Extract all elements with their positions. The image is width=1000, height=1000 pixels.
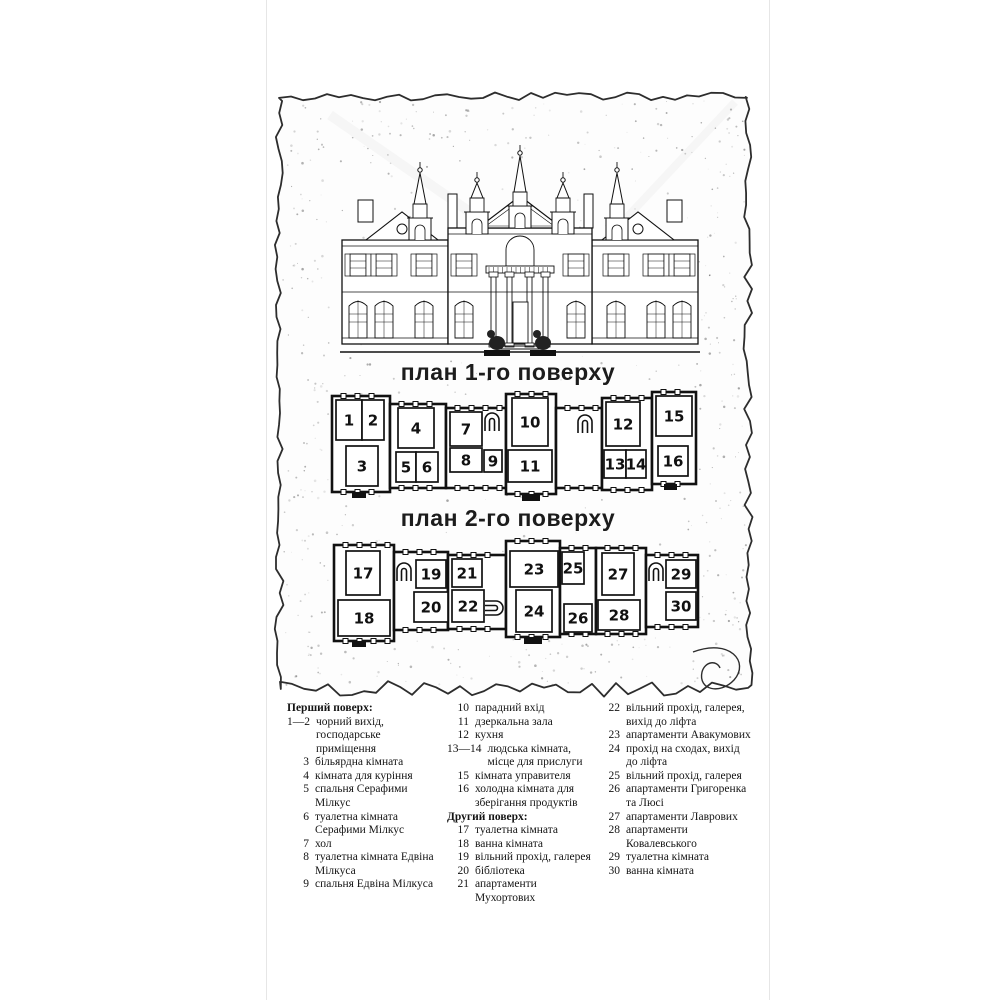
legend-entry-10: 10парадний вхід (447, 702, 595, 716)
room-3: 3 (346, 446, 378, 486)
legend-entry-30: 30ванна кімната (598, 865, 753, 879)
legend-entry-number: 24 (598, 743, 626, 770)
room-number: 17 (353, 565, 374, 583)
legend-entry-text: дзеркальна зала (475, 716, 595, 730)
room-12: 12 (606, 402, 640, 446)
legend-entry-text: апартаменти Мухортових (475, 878, 595, 905)
legend-entry-text: вільний прохід, галерея, вихід до ліфта (626, 702, 753, 729)
room-13: 13 (604, 450, 626, 478)
legend-entry-number: 5 (287, 783, 315, 810)
room-number: 26 (568, 610, 589, 628)
legend-entry-11: 11дзеркальна зала (447, 716, 595, 730)
legend-entry-9: 9спальня Едвіна Мілкуса (287, 878, 437, 892)
room-5: 5 (396, 452, 416, 482)
legend-entry-number: 28 (598, 824, 626, 851)
legend-entry-text: ванна кімната (475, 838, 595, 852)
legend-entry-number: 13—14 (447, 743, 488, 770)
legend-entry-number: 16 (447, 783, 475, 810)
legend-entry-text: кухня (475, 729, 595, 743)
legend-entry-text: туалетна кімната Серафими Мілкус (315, 811, 437, 838)
room-1: 1 (336, 400, 362, 440)
legend-entry-text: туалетна кімната Едвіна Мілкуса (315, 851, 437, 878)
legend-entry-number: 29 (598, 851, 626, 865)
legend-entry-number: 19 (447, 851, 475, 865)
legend-entry-text: холодна кімната для зберігання продуктів (475, 783, 595, 810)
legend-entry-number: 11 (447, 716, 475, 730)
legend-entry-text: парадний вхід (475, 702, 595, 716)
legend-entry-6: 6туалетна кімната Серафими Мілкус (287, 811, 437, 838)
room-number: 1 (344, 412, 354, 430)
room-number: 7 (461, 421, 471, 439)
legend-entry-24: 24прохід на сходах, вихід до ліфта (598, 743, 753, 770)
room-17: 17 (346, 551, 380, 595)
legend-entry-text: людська кімната, місце для прислуги (488, 743, 596, 770)
legend: Перший поверх:1—2чорний вихід, господарс… (287, 702, 755, 912)
room-number: 3 (357, 458, 367, 476)
room-number: 23 (524, 561, 545, 579)
legend-entry-17: 17туалетна кімната (447, 824, 595, 838)
legend-entry-number: 30 (598, 865, 626, 879)
legend-entry-13—14: 13—14людська кімната, місце для прислуги (447, 743, 595, 770)
legend-entry-text: чорний вихід, господарське приміщення (316, 716, 437, 757)
legend-entry-25: 25вільний прохід, галерея (598, 770, 753, 784)
plan2-title: план 2-го поверху (273, 505, 743, 532)
legend-entry-number: 6 (287, 811, 315, 838)
room-27: 27 (602, 553, 634, 595)
room-number: 18 (354, 610, 375, 628)
room-4: 4 (398, 408, 434, 448)
floor-plan-2: 1718192021222324252627282930 (334, 539, 698, 648)
legend-entry-4: 4кімната для куріння (287, 770, 437, 784)
legend-entry-text: більярдна кімната (315, 756, 437, 770)
room-number: 28 (609, 607, 630, 625)
legend-entry-28: 28апартаменти Ковалевського (598, 824, 753, 851)
room-18: 18 (338, 600, 390, 636)
floor-plan-1: 12345678910111213141516 (332, 390, 696, 502)
legend-entry-26: 26апартаменти Григоренка та Люсі (598, 783, 753, 810)
legend-entry-27: 27апартаменти Лаврових (598, 811, 753, 825)
legend-entry-number: 4 (287, 770, 315, 784)
room-number: 11 (520, 458, 541, 476)
room-16: 16 (658, 446, 688, 476)
legend-entry-7: 7хол (287, 838, 437, 852)
legend-entry-22: 22вільний прохід, галерея, вихід до ліфт… (598, 702, 753, 729)
legend-entry-number: 12 (447, 729, 475, 743)
legend-entry-number: 22 (598, 702, 626, 729)
legend-header: Другий поверх: (447, 811, 595, 825)
room-number: 12 (613, 416, 634, 434)
room-number: 14 (626, 456, 647, 474)
legend-column-2: 10парадний вхід11дзеркальна зала12кухня1… (447, 702, 595, 905)
legend-entry-8: 8туалетна кімната Едвіна Мілкуса (287, 851, 437, 878)
legend-entry-text: апартаменти Григоренка та Люсі (626, 783, 753, 810)
legend-entry-text: бібліотека (475, 865, 595, 879)
legend-entry-number: 27 (598, 811, 626, 825)
room-7: 7 (450, 412, 482, 446)
legend-entry-number: 25 (598, 770, 626, 784)
legend-entry-number: 15 (447, 770, 475, 784)
room-11: 11 (508, 450, 552, 482)
legend-entry-number: 21 (447, 878, 475, 905)
room-19: 19 (416, 560, 446, 588)
room-number: 16 (663, 453, 684, 471)
legend-entry-number: 9 (287, 878, 315, 892)
room-number: 9 (488, 453, 498, 471)
room-number: 6 (422, 459, 432, 477)
legend-entry-number: 20 (447, 865, 475, 879)
room-number: 19 (421, 566, 442, 584)
plan1-title: план 1-го поверху (273, 359, 743, 386)
legend-entry-text: кімната управителя (475, 770, 595, 784)
room-22: 22 (452, 590, 484, 622)
legend-entry-number: 8 (287, 851, 315, 878)
legend-entry-number: 10 (447, 702, 475, 716)
room-29: 29 (666, 560, 696, 588)
legend-entry-text: туалетна кімната (475, 824, 595, 838)
room-number: 4 (411, 420, 421, 438)
book-page: 12345678910111213141516 1718192021222324… (0, 0, 1000, 1000)
legend-header: Перший поверх: (287, 702, 437, 716)
legend-entry-number: 23 (598, 729, 626, 743)
room-21: 21 (452, 559, 482, 587)
room-28: 28 (598, 600, 640, 630)
legend-entry-text: кімната для куріння (315, 770, 437, 784)
room-2: 2 (362, 400, 384, 440)
room-number: 22 (458, 598, 479, 616)
legend-entry-text: спальня Серафими Мілкус (315, 783, 437, 810)
room-number: 5 (401, 459, 411, 477)
room-24: 24 (516, 590, 552, 632)
legend-column-1: Перший поверх:1—2чорний вихід, господарс… (287, 702, 437, 892)
legend-entry-text: вільний прохід, галерея (626, 770, 753, 784)
legend-entry-21: 21апартаменти Мухортових (447, 878, 595, 905)
room-8: 8 (450, 448, 482, 472)
legend-entry-29: 29туалетна кімната (598, 851, 753, 865)
legend-entry-text: прохід на сходах, вихід до ліфта (626, 743, 753, 770)
room-number: 8 (461, 452, 471, 470)
room-number: 15 (664, 408, 685, 426)
legend-entry-number: 18 (447, 838, 475, 852)
room-9: 9 (484, 450, 502, 472)
room-10: 10 (512, 398, 548, 446)
legend-entry-text: апартаменти Авакумових (626, 729, 753, 743)
legend-entry-number: 7 (287, 838, 315, 852)
legend-entry-number: 1—2 (287, 716, 316, 757)
legend-entry-23: 23апартаменти Авакумових (598, 729, 753, 743)
room-number: 21 (457, 565, 478, 583)
room-30: 30 (666, 592, 696, 620)
room-number: 29 (671, 566, 692, 584)
legend-entry-text: спальня Едвіна Мілкуса (315, 878, 437, 892)
room-number: 27 (608, 566, 629, 584)
legend-entry-text: ванна кімната (626, 865, 753, 879)
room-number: 30 (671, 598, 692, 616)
room-number: 24 (524, 603, 545, 621)
legend-entry-15: 15кімната управителя (447, 770, 595, 784)
room-number: 20 (421, 599, 442, 617)
legend-entry-3: 3більярдна кімната (287, 756, 437, 770)
legend-entry-text: туалетна кімната (626, 851, 753, 865)
room-number: 13 (605, 456, 626, 474)
legend-entry-number: 17 (447, 824, 475, 838)
legend-entry-18: 18ванна кімната (447, 838, 595, 852)
room-number: 2 (368, 412, 378, 430)
room-25: 25 (562, 552, 584, 584)
legend-entry-text: вільний прохід, галерея (475, 851, 595, 865)
legend-entry-5: 5спальня Серафими Мілкус (287, 783, 437, 810)
room-15: 15 (656, 396, 692, 436)
legend-entry-text: апартаменти Лаврових (626, 811, 753, 825)
legend-entry-text: хол (315, 838, 437, 852)
room-20: 20 (414, 592, 448, 622)
room-6: 6 (416, 452, 438, 482)
legend-column-3: 22вільний прохід, галерея, вихід до ліфт… (598, 702, 753, 878)
legend-entry-12: 12кухня (447, 729, 595, 743)
room-number: 10 (520, 414, 541, 432)
legend-entry-19: 19вільний прохід, галерея (447, 851, 595, 865)
room-number: 25 (563, 560, 584, 578)
legend-entry-16: 16холодна кімната для зберігання продукт… (447, 783, 595, 810)
legend-entry-number: 3 (287, 756, 315, 770)
room-23: 23 (510, 551, 558, 587)
legend-entry-text: апартаменти Ковалевського (626, 824, 753, 851)
legend-entry-20: 20бібліотека (447, 865, 595, 879)
legend-entry-1—2: 1—2чорний вихід, господарське приміщення (287, 716, 437, 757)
legend-entry-number: 26 (598, 783, 626, 810)
room-26: 26 (564, 604, 592, 632)
room-14: 14 (626, 450, 647, 478)
